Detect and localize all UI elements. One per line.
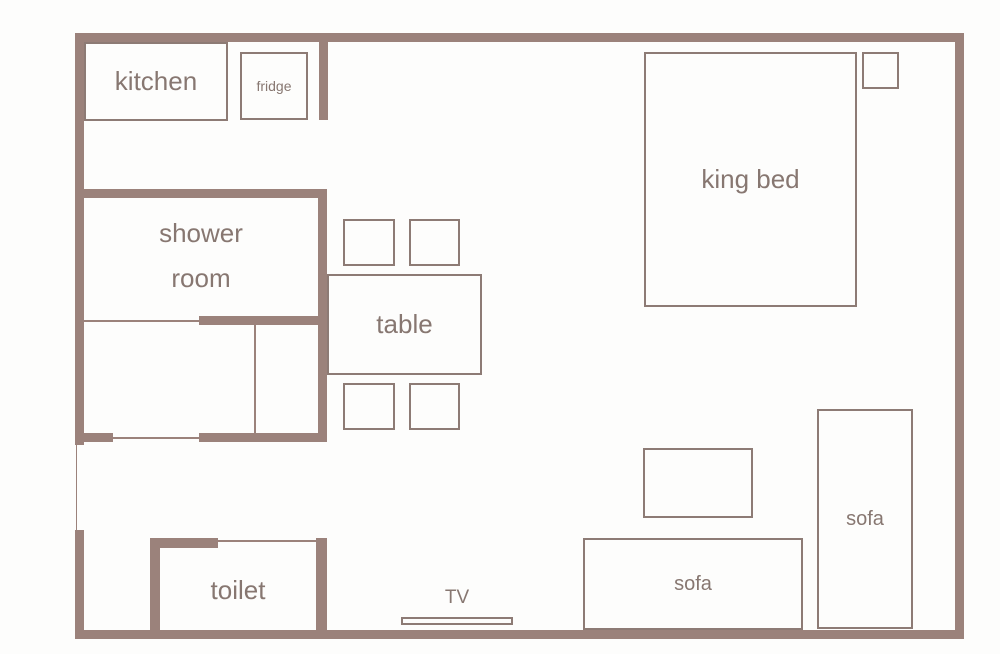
floor-plan: kitchen fridge king bed shower room tabl…	[0, 0, 1000, 654]
dining-table: table	[327, 274, 482, 375]
king-bed-label: king bed	[701, 164, 799, 195]
shower-door-line	[113, 437, 199, 439]
toilet-wall-right	[316, 538, 327, 630]
sofa-bottom-label: sofa	[674, 573, 712, 596]
toilet-wall-top	[150, 538, 218, 548]
tv	[401, 617, 513, 625]
fridge-wall-stub	[319, 42, 328, 120]
king-bed: king bed	[644, 52, 857, 307]
tv-label: TV	[445, 587, 469, 609]
wall-bottom	[75, 630, 964, 639]
wall-left-upper	[75, 33, 84, 445]
toilet-label: toilet	[211, 575, 266, 606]
shower-partition-line	[83, 320, 199, 322]
coffee-table	[643, 448, 753, 518]
left-door-line	[76, 445, 77, 530]
wall-left-lower	[75, 530, 84, 639]
sofa-right-label: sofa	[846, 508, 884, 531]
toilet-label-wrap: toilet	[160, 560, 316, 620]
shower-wall-bottom-left	[75, 433, 113, 442]
wall-top	[75, 33, 964, 42]
shower-wall-top	[79, 189, 327, 198]
chair-bottom-right	[409, 383, 460, 430]
nightstand	[862, 52, 899, 89]
kitchen-label: kitchen	[115, 66, 197, 97]
table-label: table	[376, 309, 432, 340]
chair-top-left	[343, 219, 395, 266]
sofa-right: sofa	[817, 409, 913, 629]
sofa-bottom: sofa	[583, 538, 803, 630]
chair-bottom-left	[343, 383, 395, 430]
shower-room-label: shower room	[84, 210, 318, 302]
fridge: fridge	[240, 52, 308, 120]
fridge-label: fridge	[256, 78, 291, 94]
shower-wall-right	[318, 189, 327, 441]
shower-divider-line	[254, 325, 256, 437]
shower-wall-bottom-right	[199, 433, 327, 442]
chair-top-right	[409, 219, 460, 266]
toilet-door-line	[218, 540, 316, 542]
wall-right	[955, 33, 964, 639]
shower-room-label-line1: shower	[159, 211, 243, 256]
tv-label-wrap: TV	[401, 586, 513, 610]
kitchen-counter: kitchen	[84, 42, 228, 121]
shower-wall-mid	[199, 316, 327, 325]
shower-room-label-line2: room	[171, 256, 230, 301]
toilet-wall-left	[150, 538, 160, 630]
